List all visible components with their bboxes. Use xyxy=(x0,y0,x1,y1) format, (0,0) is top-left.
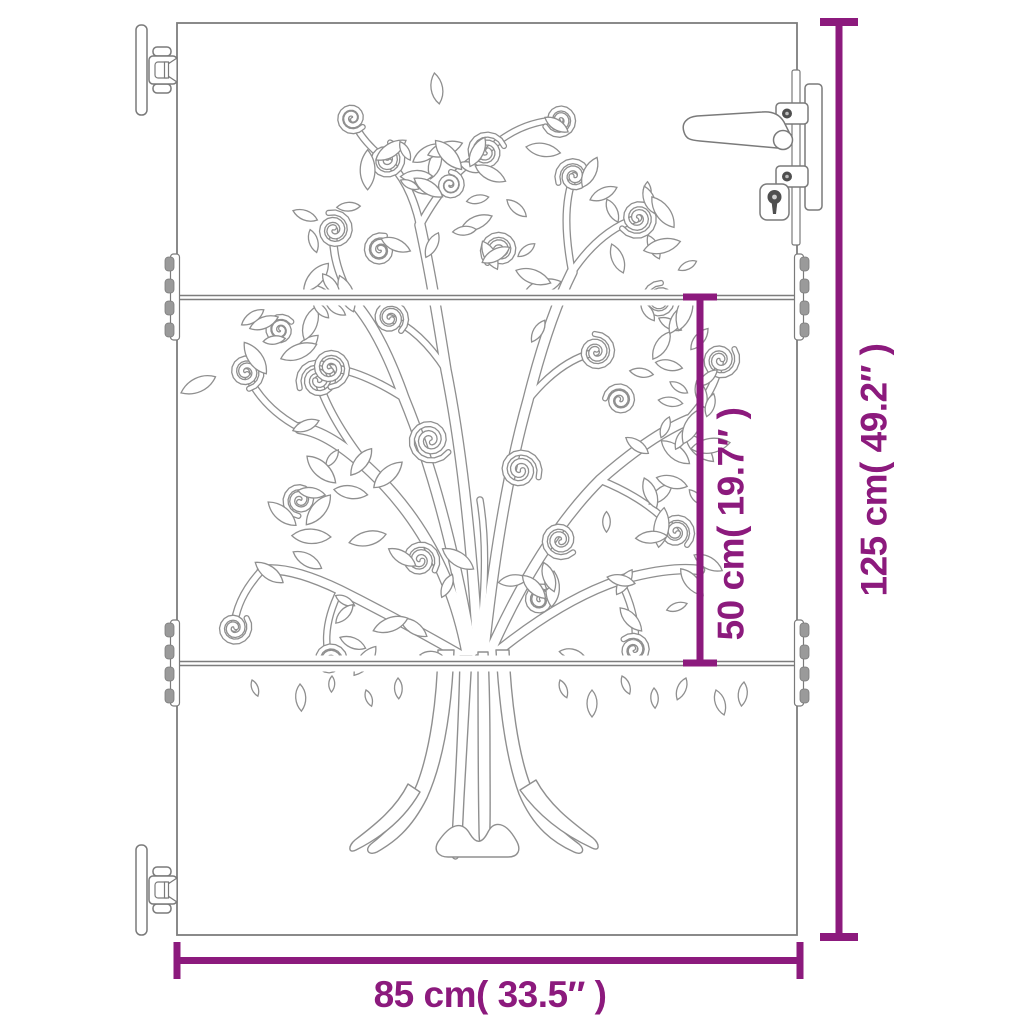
hinge-top-left-icon xyxy=(136,25,177,115)
dim-width-label: 85 cm( 33.5″ ) xyxy=(374,974,607,1015)
dim-height-line xyxy=(836,22,843,937)
dim-panel-line xyxy=(697,297,704,663)
dim-width-line xyxy=(177,957,800,964)
hinge-bottom-left-icon xyxy=(136,845,177,935)
dim-height-cap-bottom xyxy=(820,933,858,941)
dim-panel-cap-bottom xyxy=(683,660,717,667)
dim-height-label: 125 cm( 49.2″ ) xyxy=(854,344,895,597)
gate-diagram-canvas: 50 cm( 19.7″ ) 125 cm( 49.2″ ) 85 cm( 33… xyxy=(0,0,1024,1024)
dim-panel-label: 50 cm( 19.7″ ) xyxy=(711,408,752,641)
dim-width-cap-right xyxy=(797,942,804,979)
